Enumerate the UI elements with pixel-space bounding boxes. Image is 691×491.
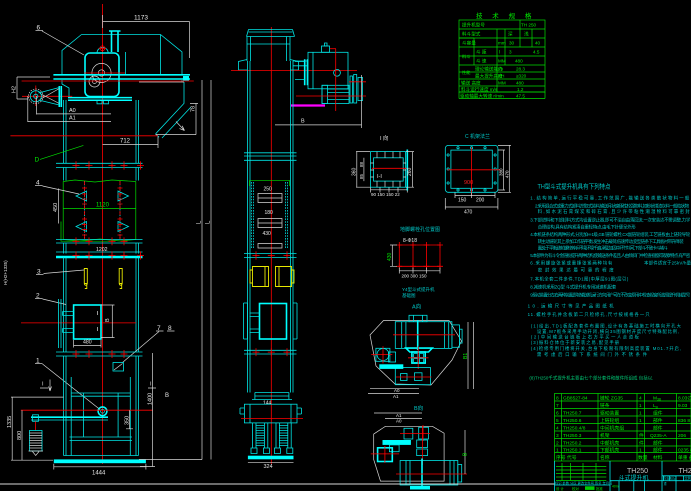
svg-text:480: 480: [516, 81, 524, 86]
svg-text:TH2: TH2: [679, 468, 691, 475]
svg-text:800: 800: [17, 431, 23, 440]
svg-text:TH250.4/8: TH250.4/8: [563, 426, 586, 432]
svg-text:驱动装置: 驱动装置: [600, 410, 619, 417]
svg-text:430: 430: [263, 231, 272, 237]
svg-text:名称: 名称: [600, 454, 610, 461]
svg-text:件: 件: [639, 432, 644, 439]
svg-text:7.本机全套二件多件,TD1图(中厚层91图(层引): 7.本机全套二件多件,TD1图(中厚层91图(层引): [530, 276, 629, 283]
svg-text:mm: mm: [498, 41, 506, 46]
svg-text:380: 380: [499, 168, 504, 176]
svg-text:设 计: 设 计: [556, 486, 564, 491]
svg-text:3: 3: [556, 433, 559, 439]
svg-text:中部机壳: 中部机壳: [600, 440, 619, 447]
svg-text:28.3: 28.3: [516, 67, 525, 72]
svg-text:200 300 150: 200 300 150: [402, 274, 428, 279]
svg-text:部件: 部件: [653, 425, 663, 432]
svg-text:1: 1: [639, 411, 642, 417]
svg-text:3: 3: [509, 50, 512, 55]
svg-text:90 150 150 22: 90 150 150 22: [371, 192, 400, 197]
svg-text:批准: 批准: [596, 486, 603, 491]
svg-text:206: 206: [678, 433, 686, 439]
svg-text:输送 高度: 输送 高度: [461, 80, 481, 87]
svg-text:4.本机链条结构两种形式,分別加H-1级,GB 链轮螺栓,C: 4.本机链条结构两种形式,分別加H-1级,GB 链轮螺栓,CX副链轮组装,工艺链…: [530, 231, 691, 238]
svg-text:900: 900: [464, 180, 473, 186]
svg-text:件: 件: [639, 440, 644, 447]
svg-text:斗式提升机: 斗式提升机: [619, 474, 649, 482]
svg-text:47.5: 47.5: [516, 94, 525, 99]
svg-text:本部件适宜于25kV/h量: 本部件适宜于25kV/h量: [644, 259, 691, 266]
svg-text:8: 8: [556, 396, 559, 402]
svg-text:1.结构简单,运行平稳可靠,工作范围广,能输送各类散状物料一: 1.结构简单,运行平稳可靠,工作范围广,能输送各类散状物料一般: [530, 195, 690, 202]
svg-text:TH250.3: TH250.3: [563, 433, 582, 439]
svg-text:5.本部件为有斗令金链板提升两种结构,使输送条件差且,人由倾: 5.本部件为有斗令金链板提升两种结构,使输送条件差且,人由倾斜门中检查视窗得观察…: [530, 252, 691, 259]
svg-text:料斗型式: 料斗型式: [462, 31, 481, 38]
svg-text:置,处于平衡,链轮螺栓转手环境,环境千遍,承载,加固中环节均: 置,处于平衡,链轮螺栓转手环境,环境千遍,承载,加固中环节均可,下部斗不致卡斗堵…: [538, 245, 669, 252]
svg-text:1120: 1120: [96, 203, 110, 209]
svg-text:450: 450: [53, 203, 59, 212]
svg-text:A1: A1: [393, 394, 399, 399]
svg-text:144: 144: [263, 401, 272, 407]
svg-text:提升机型号: 提升机型号: [462, 22, 485, 29]
svg-text:B向: B向: [414, 404, 423, 412]
svg-text:TH250.7: TH250.7: [563, 411, 582, 417]
svg-text:40: 40: [535, 41, 541, 46]
svg-text:5: 5: [556, 418, 559, 424]
svg-text:6.采用螺旋张紧或重锤张紧两种均有: 6.采用螺旋张紧或重锤张紧两种均有: [530, 259, 613, 266]
svg-text:1: 1: [639, 403, 642, 409]
svg-text:480: 480: [515, 59, 523, 64]
svg-text:A1: A1: [69, 116, 76, 122]
svg-text:350: 350: [124, 416, 130, 425]
svg-text:11.螺栓手孔并含板第二只检修孔,尺寸按规格各一只: 11.螺栓手孔并含板第二只检修孔,尺寸按规格各一只: [528, 311, 651, 318]
svg-text:Y4型斗式提升机: Y4型斗式提升机: [402, 286, 435, 293]
svg-text:360: 360: [352, 167, 358, 176]
svg-text:1400: 1400: [147, 393, 153, 405]
svg-text:GB8527-84: GB8527-84: [563, 396, 588, 402]
svg-text:85: 85: [359, 173, 364, 179]
svg-text:链条: 链条: [600, 402, 610, 409]
svg-text:B1: B1: [463, 353, 469, 359]
svg-text:9.驱动装置分左右两种装置,即按输送机运行方向,用户可在不改: 9.驱动装置分左右两种装置,即按输送机运行方向,用户可在不改变原用中检查视窗所选…: [530, 292, 691, 299]
svg-text:基础图: 基础图: [402, 292, 416, 299]
svg-text:材料: 材料: [653, 454, 663, 461]
svg-text:机架: 机架: [600, 432, 610, 439]
svg-text:I-I: I-I: [377, 174, 382, 180]
svg-text:上链轮组: 上链轮组: [600, 417, 619, 424]
svg-text:C 机架法兰: C 机架法兰: [465, 133, 490, 140]
svg-text:TH型斗式提升机具有下列特点: TH型斗式提升机具有下列特点: [538, 182, 612, 191]
svg-text:密封效果达最可靠的程度: 密封效果达最可靠的程度: [538, 267, 615, 274]
svg-text:2: 2: [556, 441, 559, 447]
svg-text:1.2: 1.2: [517, 87, 524, 92]
svg-text:TH250.6: TH250.6: [563, 418, 582, 424]
svg-text:部件: 部件: [653, 440, 663, 447]
svg-text:8-Φ18: 8-Φ18: [403, 238, 417, 244]
svg-text:组件: 组件: [653, 410, 663, 417]
svg-text:浅: 浅: [524, 31, 529, 37]
svg-text:t/h: t/h: [498, 67, 504, 72]
svg-text:712: 712: [120, 139, 131, 145]
svg-text:A1: A1: [396, 413, 402, 418]
svg-text:B: B: [301, 119, 305, 125]
svg-text:A0: A0: [394, 388, 400, 393]
svg-text:地脚螺栓孔位置图: 地脚螺栓孔位置图: [400, 226, 440, 233]
svg-text:校对: 校对: [572, 486, 579, 491]
svg-text:l: l: [499, 50, 500, 55]
svg-text:转主动链轮其上,参加工作链平衡,发生冲击载荷,低速传动,变型: 转主动链轮其上,参加工作链平衡,发生冲击载荷,低速传动,变型链条下工具板衬带升降…: [538, 238, 685, 245]
svg-text:TH250: TH250: [627, 468, 648, 475]
svg-text:7: 7: [556, 403, 559, 409]
svg-text:1: 1: [639, 418, 642, 424]
svg-text:H(H2+1335): H(H2+1335): [3, 260, 8, 285]
svg-text:480: 480: [83, 340, 92, 346]
svg-text:324: 324: [264, 464, 273, 470]
svg-text:1335: 1335: [7, 416, 13, 428]
svg-text:技 术 规 格: 技 术 规 格: [476, 11, 535, 20]
svg-text:88: 88: [359, 161, 364, 167]
svg-text:数量: 数量: [638, 454, 648, 461]
svg-text:A0: A0: [396, 419, 402, 424]
svg-text:4: 4: [556, 426, 559, 432]
svg-text:阶段标记: 阶段标记: [664, 476, 678, 481]
svg-text:I 向: I 向: [380, 134, 389, 142]
svg-text:430: 430: [387, 252, 393, 261]
svg-text:比例: 比例: [685, 476, 691, 481]
svg-text:6: 6: [556, 411, 559, 417]
svg-text:TH250.2: TH250.2: [563, 441, 582, 447]
svg-text:深: 深: [508, 31, 513, 38]
svg-text:Q235-A: Q235-A: [650, 433, 667, 439]
svg-text:A向: A向: [412, 303, 421, 311]
svg-text:料斗: 料斗: [462, 53, 470, 60]
svg-text:4: 4: [639, 396, 642, 402]
svg-text:200: 200: [476, 198, 485, 204]
svg-text:(3)振料仓体位于新安装之易,配见手册: (3)振料仓体位于新安装之易,配见手册: [531, 339, 620, 346]
svg-text:0235 8: 0235 8: [678, 448, 691, 454]
svg-text:斗容量: 斗容量: [462, 40, 476, 47]
svg-text:9.03: 9.03: [678, 403, 688, 409]
svg-text:1: 1: [556, 448, 559, 454]
svg-text:≥320: ≥320: [516, 74, 527, 79]
svg-text:1173: 1173: [134, 15, 148, 22]
svg-text:4.5: 4.5: [533, 50, 540, 55]
svg-text:斗 距: 斗 距: [476, 50, 487, 55]
svg-text:标记 处数 分区 更改文件号 签名 年月日: 标记 处数 分区 更改文件号 签名 年月日: [555, 480, 612, 485]
svg-text:30: 30: [509, 41, 515, 46]
svg-text:TH250.1: TH250.1: [563, 448, 582, 454]
svg-text:150: 150: [458, 198, 467, 204]
svg-text:KH: KH: [498, 74, 504, 79]
svg-text:A0: A0: [69, 108, 76, 114]
svg-text:4t/m: 4t/m: [612, 485, 619, 489]
svg-text:料,如水泥石膏煤炭和碎石膏,且少许带粘性潮湿物料可靠密封: 料,如水泥石膏煤炭和碎石膏,且少许带粘性潮湿物料可靠密封: [538, 208, 691, 215]
svg-text:性能: 性能: [462, 69, 471, 76]
svg-text:470: 470: [464, 210, 473, 216]
svg-text:部件: 部件: [653, 417, 663, 424]
svg-text:TH 250: TH 250: [521, 23, 537, 28]
svg-text:(8)TH250千式提升机主要由七个部分套件和散件所组成 包: (8)TH250千式提升机主要由七个部分套件和散件所组成 包括以.: [529, 375, 653, 382]
svg-text:78: 78: [191, 106, 197, 112]
svg-text:250: 250: [264, 187, 273, 193]
svg-text:D: D: [35, 157, 40, 164]
svg-text:链轮 ZG35: 链轮 ZG35: [600, 395, 623, 402]
svg-text:MM: MM: [498, 81, 506, 86]
svg-text:470: 470: [505, 170, 510, 178]
svg-text:单重 备: 单重 备: [678, 454, 691, 461]
svg-text:(4)检修专用门楼将开关,台身下极限有限制高度装置 M01.: (4)检修专用门楼将开关,台身下极限有限制高度装置 M01.7开启,: [531, 345, 681, 352]
svg-text:3.下部进料和下部卸料方式均设置逆止器,即可不溢自由落回流,: 3.下部进料和下部卸料方式均设置逆止器,即可不溢自由落回流,一次安装达不需调整,…: [530, 217, 691, 224]
svg-text:B: B: [165, 393, 169, 399]
svg-text:8.减速机采用ZQ型 斗式提升机专用减速机配套: 8.减速机采用ZQ型 斗式提升机专用减速机配套: [530, 284, 617, 291]
svg-text:836 8: 836 8: [678, 418, 690, 424]
svg-text:260: 260: [407, 167, 413, 176]
svg-text:1444: 1444: [92, 471, 106, 477]
svg-text:MM: MM: [498, 59, 506, 64]
svg-text:180: 180: [265, 210, 274, 216]
svg-text:部件: 部件: [653, 447, 663, 454]
svg-text:H2: H2: [12, 86, 18, 93]
svg-text:序号 代号: 序号 代号: [556, 454, 577, 461]
svg-text:8.03∅▽: 8.03∅▽: [678, 395, 691, 401]
svg-text:合理结构,具有结构紧凑自重轻特点,由毛下针便呈外形: 合理结构,具有结构紧凑自重轻特点,由毛下针便呈外形: [538, 224, 637, 231]
svg-text:B: B: [105, 318, 111, 322]
svg-text:中间机壳组: 中间机壳组: [600, 425, 624, 432]
svg-text:1: 1: [639, 448, 642, 454]
svg-text:下部机壳: 下部机壳: [600, 447, 619, 454]
